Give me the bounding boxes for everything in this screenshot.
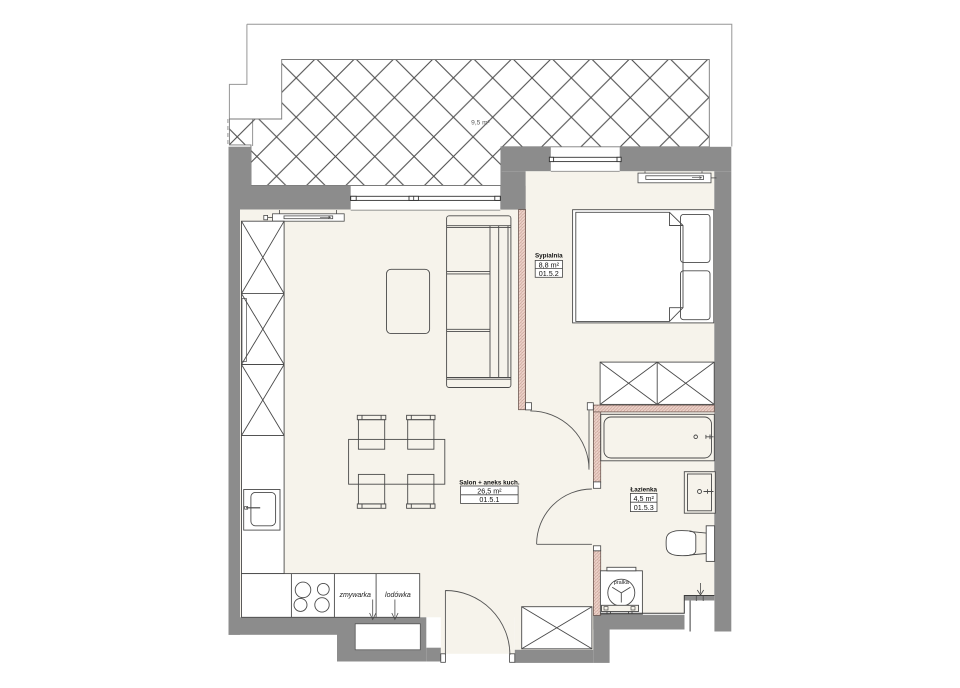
svg-text:Łazienka: Łazienka bbox=[630, 486, 657, 493]
svg-text:01.5.3: 01.5.3 bbox=[634, 503, 654, 512]
svg-text:pralka: pralka bbox=[614, 580, 630, 586]
svg-text:lodówka: lodówka bbox=[385, 592, 411, 599]
svg-text:4,5 m²: 4,5 m² bbox=[634, 494, 655, 503]
svg-text:01.5.2: 01.5.2 bbox=[539, 269, 559, 278]
svg-text:zmywarka: zmywarka bbox=[338, 592, 371, 599]
svg-text:26,5 m²: 26,5 m² bbox=[477, 486, 502, 495]
svg-text:Salon + aneks kuch.: Salon + aneks kuch. bbox=[459, 479, 520, 486]
svg-text:9,5 m²: 9,5 m² bbox=[471, 120, 490, 127]
svg-text:01.5.1: 01.5.1 bbox=[479, 495, 499, 504]
svg-text:Sypialnia: Sypialnia bbox=[535, 253, 563, 260]
